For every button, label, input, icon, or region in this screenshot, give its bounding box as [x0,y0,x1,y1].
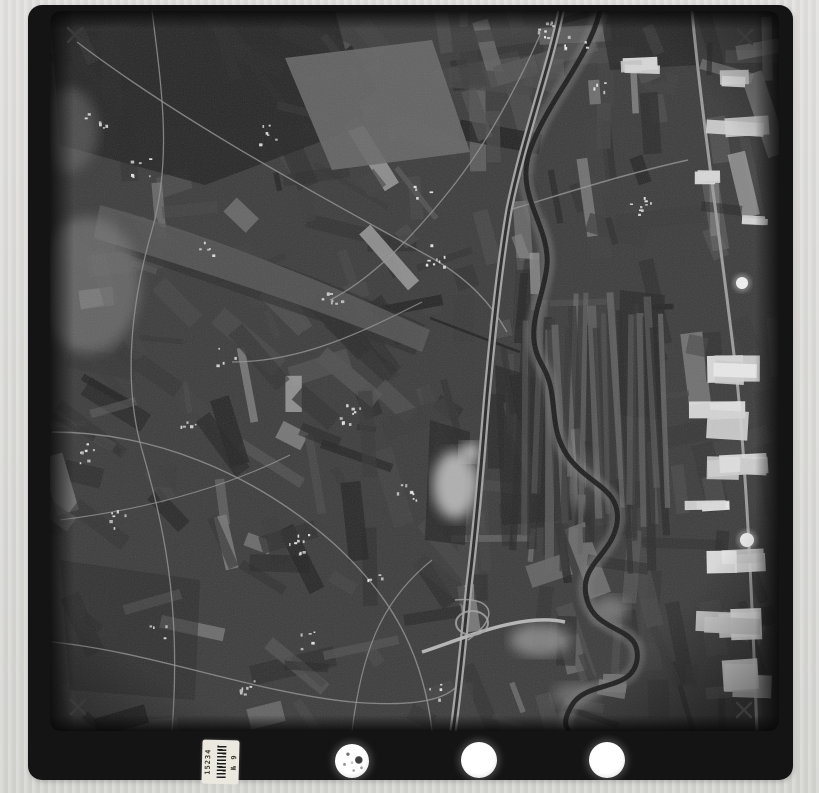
barcode [216,745,226,778]
archive-label-sticker: 15234 № 9 [201,740,239,785]
aerial-photo [0,0,819,793]
sticker-content: 15234 № 9 [202,741,239,784]
vignette [50,11,779,731]
sticker-series: № 9 [229,754,237,770]
registration-hole-right [589,742,625,778]
hole-speckles [335,744,369,778]
scanned-aerial-photo-page: 15234 № 9 [0,0,819,793]
photo-content [23,0,803,766]
sticker-number: 15234 [203,749,212,775]
registration-hole-left [335,744,369,778]
registration-hole-middle [461,742,497,778]
